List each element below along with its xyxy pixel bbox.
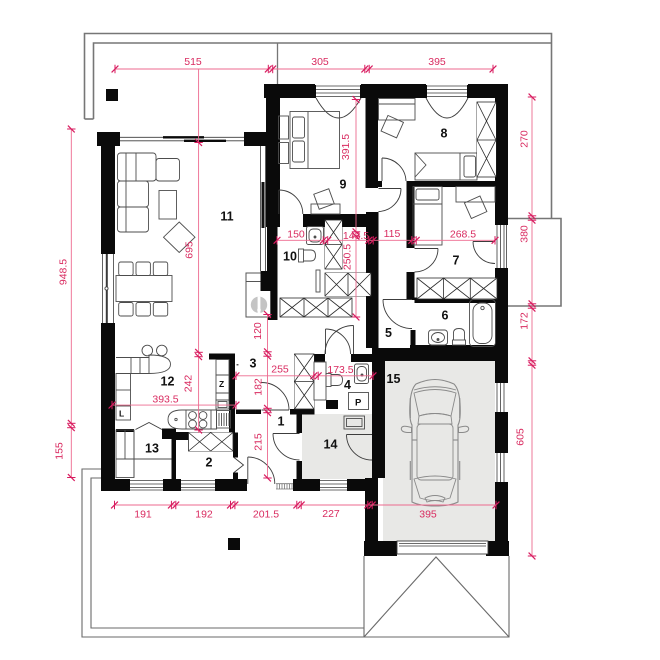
svg-text:270: 270 xyxy=(519,130,531,148)
svg-text:2: 2 xyxy=(206,456,213,470)
svg-text:242: 242 xyxy=(183,375,195,393)
svg-text:227: 227 xyxy=(322,508,340,520)
svg-text:393.5: 393.5 xyxy=(152,394,178,406)
svg-text:5: 5 xyxy=(385,326,392,340)
svg-text:250.5: 250.5 xyxy=(342,244,354,270)
svg-text:L: L xyxy=(119,409,124,419)
svg-text:305: 305 xyxy=(311,56,329,68)
svg-text:115: 115 xyxy=(384,228,401,240)
svg-text:Z: Z xyxy=(219,379,224,389)
svg-text:150: 150 xyxy=(287,229,305,241)
svg-text:14: 14 xyxy=(324,438,338,452)
svg-text:182: 182 xyxy=(253,378,265,396)
svg-text:395: 395 xyxy=(419,509,437,521)
svg-text:215: 215 xyxy=(253,433,265,451)
svg-text:10: 10 xyxy=(283,250,297,264)
svg-text:15: 15 xyxy=(387,372,401,386)
svg-text:268.5: 268.5 xyxy=(450,229,476,241)
svg-text:192: 192 xyxy=(195,509,213,521)
svg-text:380: 380 xyxy=(519,225,531,243)
svg-text:515: 515 xyxy=(184,56,202,68)
svg-text:120: 120 xyxy=(252,322,264,340)
svg-text:605: 605 xyxy=(515,428,527,446)
svg-text:12: 12 xyxy=(161,375,175,389)
svg-text:255: 255 xyxy=(271,364,289,376)
svg-text:3: 3 xyxy=(250,357,257,371)
svg-text:948.5: 948.5 xyxy=(58,259,70,285)
svg-text:173.5: 173.5 xyxy=(327,364,353,376)
svg-text:395: 395 xyxy=(428,56,446,68)
svg-text:155: 155 xyxy=(54,442,66,460)
svg-text:391.5: 391.5 xyxy=(340,134,352,160)
svg-text:13: 13 xyxy=(145,442,159,456)
svg-text:191: 191 xyxy=(134,509,152,521)
svg-text:9: 9 xyxy=(340,178,347,192)
svg-text:7: 7 xyxy=(453,254,460,268)
svg-text:172: 172 xyxy=(519,312,531,330)
svg-text:8: 8 xyxy=(441,127,448,141)
svg-text:1: 1 xyxy=(278,415,285,429)
svg-text:695: 695 xyxy=(184,241,196,259)
svg-text:P: P xyxy=(355,398,362,409)
svg-text:11: 11 xyxy=(220,210,233,224)
svg-text:4: 4 xyxy=(344,378,351,392)
svg-text:201.5: 201.5 xyxy=(253,509,279,521)
svg-text:6: 6 xyxy=(442,309,449,323)
